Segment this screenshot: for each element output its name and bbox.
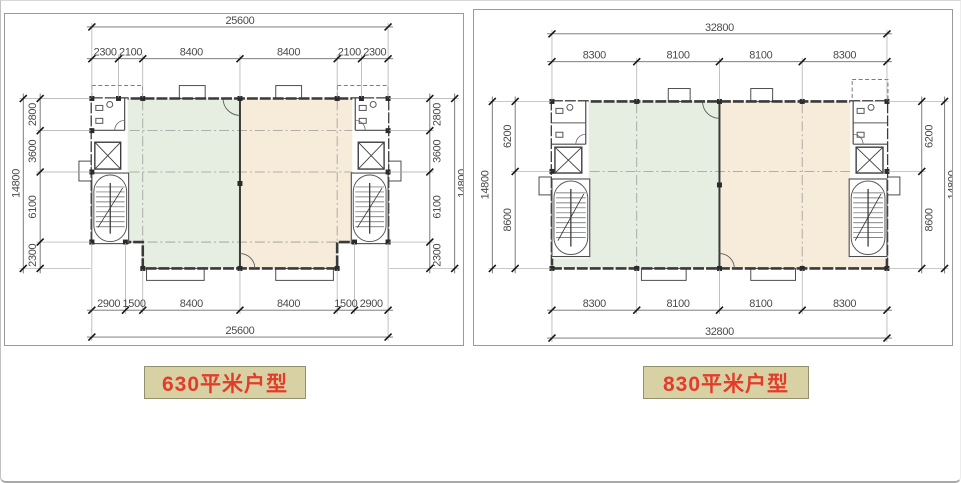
dim-label: 2300 xyxy=(94,47,117,59)
dim-label: 8300 xyxy=(833,298,856,310)
dim-label: 8300 xyxy=(833,50,856,62)
dim-label: 8100 xyxy=(667,298,690,310)
dim-label: 8100 xyxy=(667,50,690,62)
dim-label: 14800 xyxy=(947,170,952,199)
dim-label: 1500 xyxy=(334,298,357,310)
dim-label: 2300 xyxy=(432,243,444,266)
entry-canopy-top xyxy=(668,89,690,102)
dim-label: 2800 xyxy=(432,103,444,126)
dim-label: 25600 xyxy=(226,15,255,27)
dashed-canopy-box xyxy=(852,80,888,102)
dim-label: 8300 xyxy=(583,298,606,310)
dim-label: 25600 xyxy=(226,325,255,337)
floorplan-panel-left: 2560023002100840084002100230029001500840… xyxy=(4,13,464,346)
caption-unit-type-right: 830平米户型 xyxy=(643,366,809,399)
dim-label: 14800 xyxy=(479,170,491,199)
floorplan-drawing-right: 3280083008100810083008300810081008300328… xyxy=(474,10,952,345)
dim-label: 8400 xyxy=(277,47,300,59)
floorplan-panel-right: 3280083008100810083008300810081008300328… xyxy=(473,9,953,346)
entry-canopy-top xyxy=(751,89,773,102)
dim-label: 6100 xyxy=(27,195,39,218)
caption-unit-type-left: 630平米户型 xyxy=(144,366,306,399)
dim-label: 8400 xyxy=(180,298,203,310)
dim-label: 2800 xyxy=(27,103,39,126)
article-image-frame: 2560023002100840084002100230029001500840… xyxy=(0,0,961,483)
dim-label: 14800 xyxy=(457,169,463,198)
dim-label: 8400 xyxy=(180,47,203,59)
dim-label: 3600 xyxy=(27,140,39,163)
side-landing-right xyxy=(887,177,900,195)
dim-label: 2100 xyxy=(119,47,142,59)
dim-label: 8600 xyxy=(502,208,514,231)
entry-canopy-bottom xyxy=(751,268,796,280)
dim-label: 2300 xyxy=(27,243,39,266)
dim-label: 6200 xyxy=(924,125,936,148)
column-marker xyxy=(717,182,722,187)
dim-label: 8600 xyxy=(924,208,936,231)
dim-label: 14800 xyxy=(10,169,22,198)
dim-label: 2900 xyxy=(360,298,383,310)
dim-label: 2900 xyxy=(97,298,120,310)
entry-canopy-bottom xyxy=(276,268,334,280)
dim-label: 2100 xyxy=(338,47,361,59)
dim-label: 8300 xyxy=(583,50,606,62)
entry-canopy-bottom xyxy=(147,268,205,280)
dim-label: 6100 xyxy=(432,195,444,218)
dim-label: 8400 xyxy=(277,298,300,310)
dim-label: 6200 xyxy=(502,125,514,148)
entry-canopy-top xyxy=(276,86,302,99)
dim-label: 8100 xyxy=(749,298,772,310)
dim-label: 2300 xyxy=(363,47,386,59)
dim-label: 1500 xyxy=(123,298,146,310)
side-landing-left xyxy=(539,177,552,195)
dim-label: 32800 xyxy=(705,326,734,338)
dim-label: 3600 xyxy=(432,140,444,163)
entry-canopy-bottom xyxy=(641,268,686,280)
dim-label: 32800 xyxy=(705,22,734,34)
dim-label: 8100 xyxy=(749,50,772,62)
entry-canopy-top xyxy=(179,86,205,99)
floorplan-drawing-left: 2560023002100840084002100230029001500840… xyxy=(5,14,463,345)
column-marker xyxy=(237,181,242,186)
